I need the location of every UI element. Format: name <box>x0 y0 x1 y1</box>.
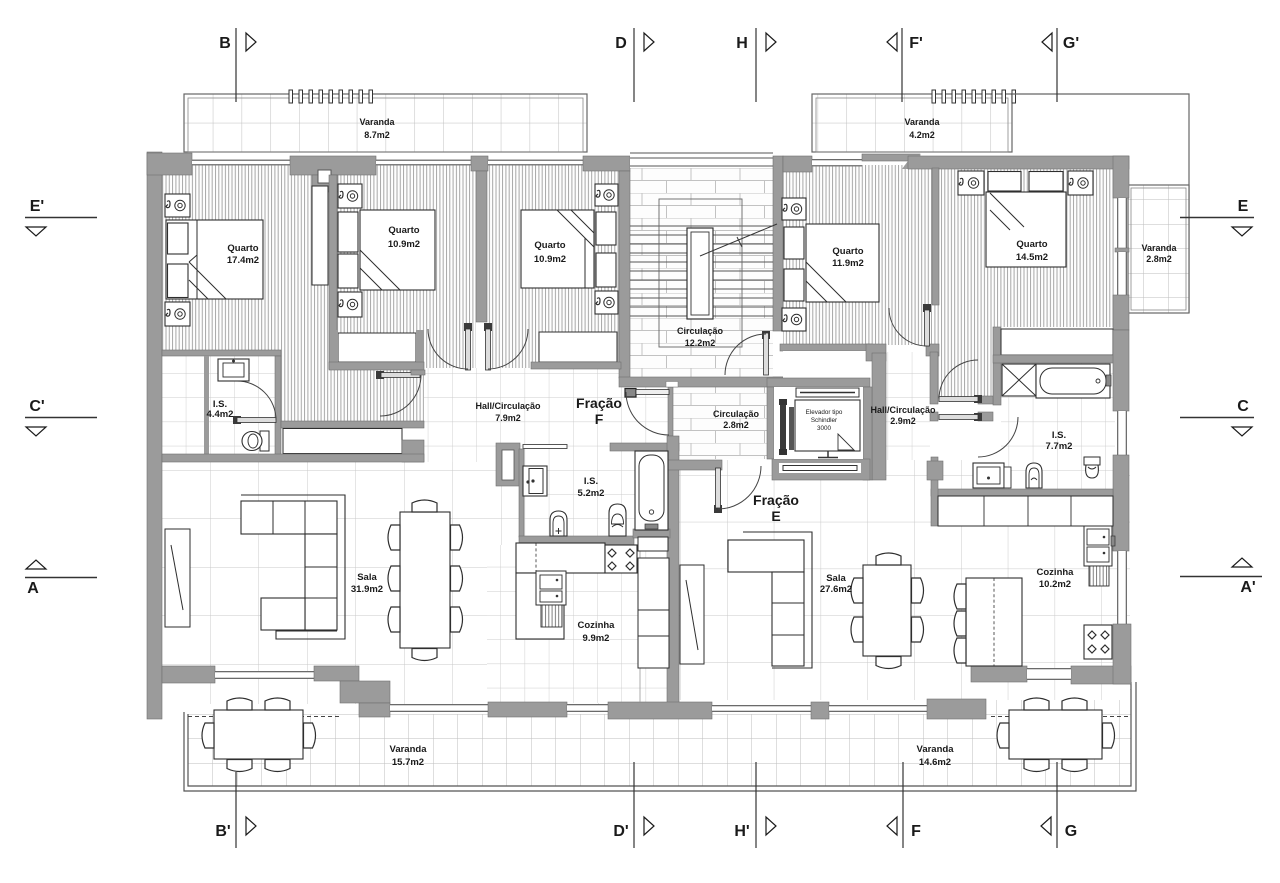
svg-text:Quarto: Quarto <box>388 225 419 236</box>
svg-text:G: G <box>1065 823 1077 840</box>
svg-text:4.2m2: 4.2m2 <box>909 130 935 140</box>
svg-text:10.9m2: 10.9m2 <box>534 254 566 265</box>
svg-text:Varanda: Varanda <box>917 744 955 755</box>
svg-text:Varanda: Varanda <box>359 117 395 127</box>
svg-text:5.2m2: 5.2m2 <box>578 488 605 499</box>
svg-text:Fração: Fração <box>576 395 622 411</box>
svg-text:8.7m2: 8.7m2 <box>364 130 390 140</box>
svg-text:F: F <box>911 823 921 840</box>
svg-text:E': E' <box>30 198 44 215</box>
svg-text:A': A' <box>1240 579 1255 596</box>
svg-text:Elevador tipo: Elevador tipo <box>806 409 843 416</box>
svg-text:4.4m2: 4.4m2 <box>207 409 234 420</box>
svg-text:Varanda: Varanda <box>904 117 940 127</box>
svg-text:2.8m2: 2.8m2 <box>1146 254 1172 264</box>
svg-text:Fração: Fração <box>753 492 799 508</box>
svg-text:11.9m2: 11.9m2 <box>832 258 864 269</box>
svg-text:H': H' <box>734 823 749 840</box>
svg-text:9.9m2: 9.9m2 <box>583 633 610 644</box>
svg-text:2.9m2: 2.9m2 <box>890 416 916 426</box>
svg-text:Varanda: Varanda <box>390 744 428 755</box>
svg-text:14.5m2: 14.5m2 <box>1016 252 1048 263</box>
svg-text:Quarto: Quarto <box>227 243 258 254</box>
svg-text:H: H <box>736 35 748 52</box>
svg-text:E: E <box>1238 198 1249 215</box>
svg-text:Schindler: Schindler <box>811 417 837 424</box>
svg-text:D': D' <box>613 823 628 840</box>
svg-text:A: A <box>27 580 39 597</box>
svg-text:2.8m2: 2.8m2 <box>723 420 749 430</box>
svg-text:E: E <box>771 508 780 524</box>
svg-text:B: B <box>219 35 231 52</box>
svg-text:10.2m2: 10.2m2 <box>1039 579 1071 590</box>
svg-text:Hall/Circulação: Hall/Circulação <box>870 405 936 415</box>
svg-text:Quarto: Quarto <box>534 240 565 251</box>
svg-text:10.9m2: 10.9m2 <box>388 239 420 250</box>
svg-text:Hall/Circulação: Hall/Circulação <box>475 401 541 411</box>
svg-text:B': B' <box>215 823 230 840</box>
svg-text:14.6m2: 14.6m2 <box>919 757 951 768</box>
svg-text:D: D <box>615 35 627 52</box>
svg-text:I.S.: I.S. <box>1052 430 1066 441</box>
svg-text:Sala: Sala <box>357 572 377 583</box>
svg-text:I.S.: I.S. <box>584 476 598 487</box>
svg-text:Sala: Sala <box>826 573 846 584</box>
svg-text:Varanda: Varanda <box>1141 243 1177 253</box>
svg-text:Cozinha: Cozinha <box>1037 567 1075 578</box>
svg-text:15.7m2: 15.7m2 <box>392 757 424 768</box>
svg-text:7.7m2: 7.7m2 <box>1046 441 1073 452</box>
svg-text:G': G' <box>1063 35 1079 52</box>
svg-text:7.9m2: 7.9m2 <box>495 413 521 423</box>
svg-text:Quarto: Quarto <box>832 246 863 257</box>
svg-text:31.9m2: 31.9m2 <box>351 584 383 595</box>
svg-text:12.2m2: 12.2m2 <box>685 338 716 348</box>
svg-text:Circulação: Circulação <box>677 326 724 336</box>
svg-text:27.6m2: 27.6m2 <box>820 584 852 595</box>
svg-text:F: F <box>595 411 604 427</box>
svg-text:Cozinha: Cozinha <box>578 620 616 631</box>
svg-text:Quarto: Quarto <box>1016 239 1047 250</box>
svg-text:3000: 3000 <box>817 425 832 432</box>
svg-text:C: C <box>1237 398 1249 415</box>
svg-text:C': C' <box>29 398 44 415</box>
svg-text:F': F' <box>909 35 923 52</box>
svg-text:17.4m2: 17.4m2 <box>227 255 259 266</box>
svg-text:Circulação: Circulação <box>713 409 760 419</box>
